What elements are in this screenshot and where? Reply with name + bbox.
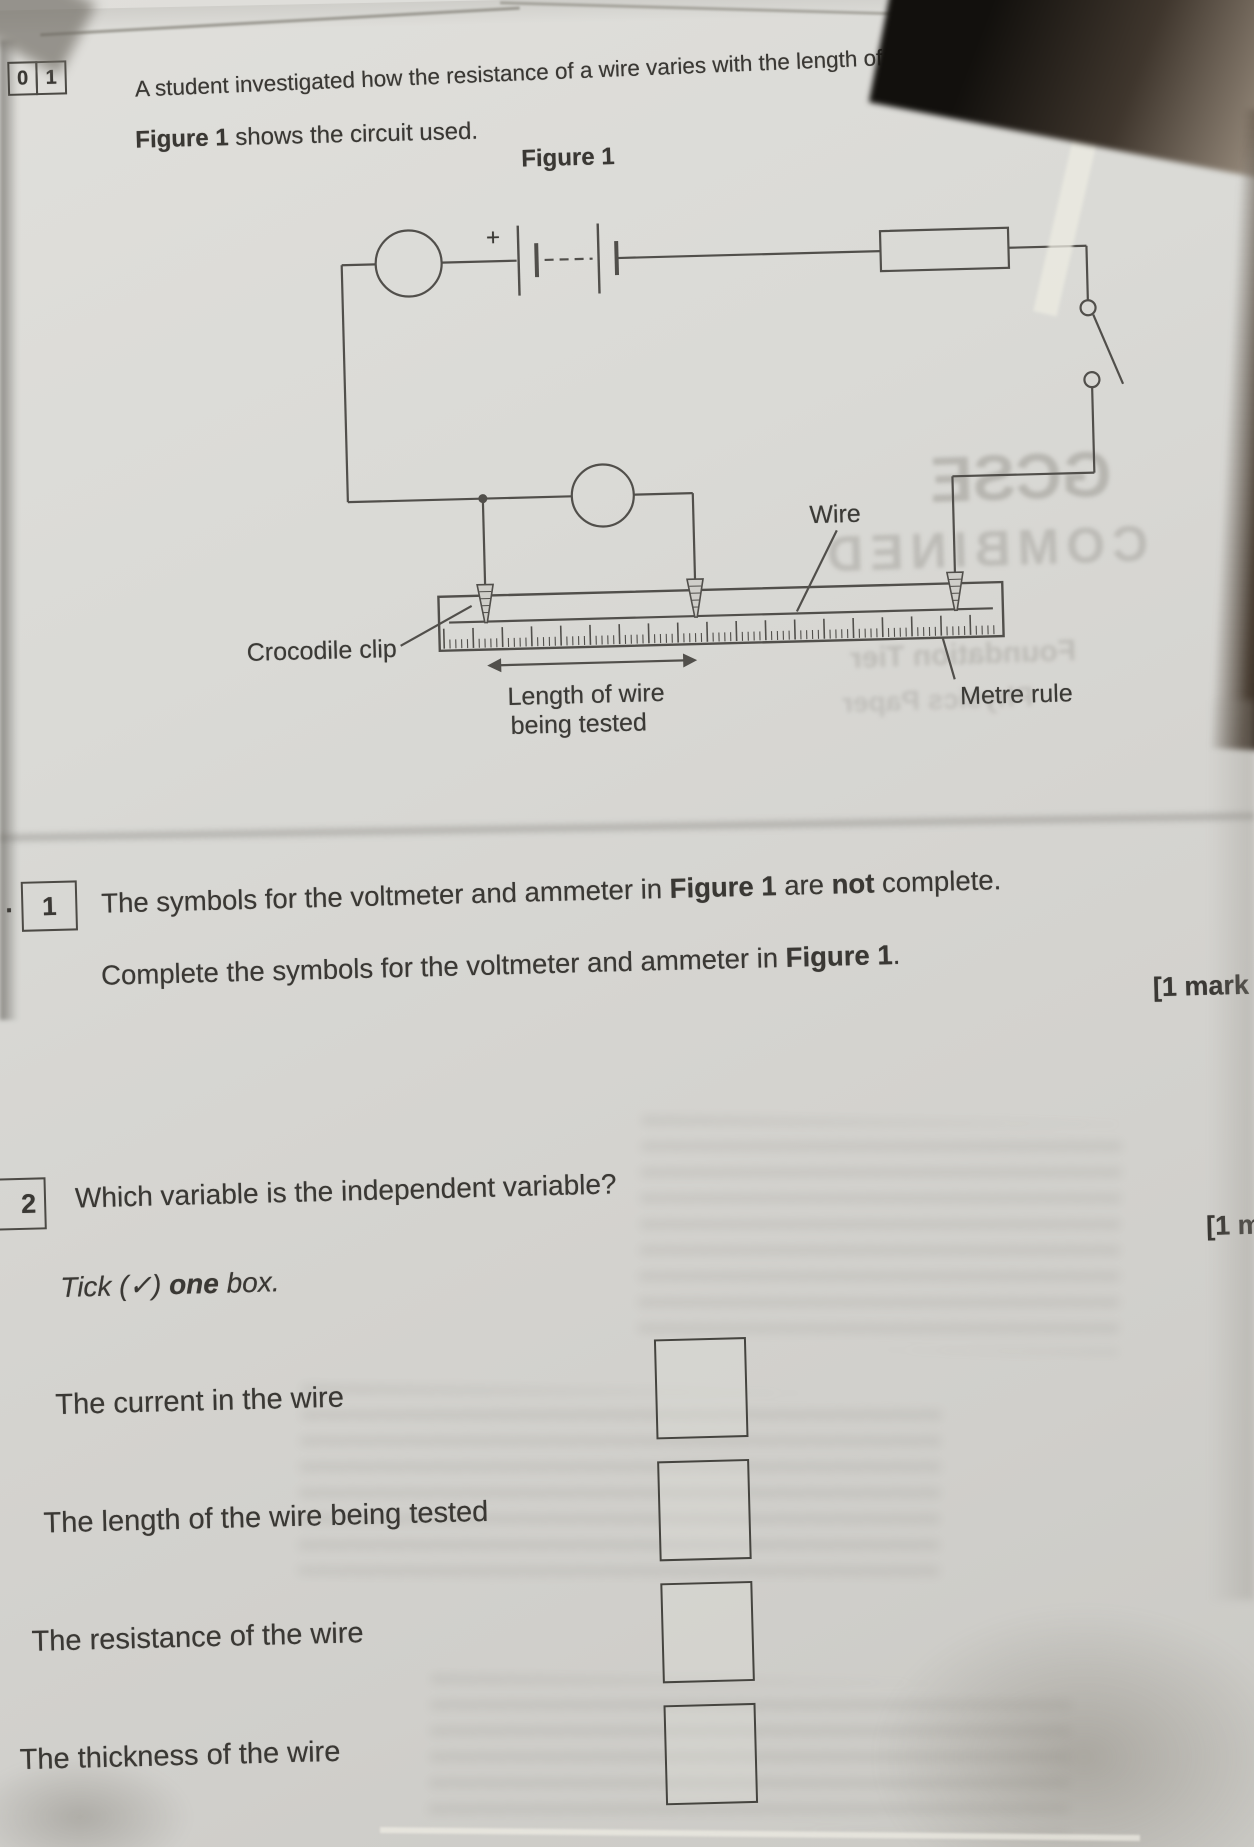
battery-dashed-link [545, 259, 593, 260]
q2-number-box: 2 [0, 1177, 47, 1231]
tick-box-option-3[interactable] [660, 1581, 755, 1683]
q1-instruction-bold: Figure 1 [785, 939, 893, 973]
wire-callout-line [795, 530, 839, 611]
resistor-symbol [880, 228, 1009, 271]
voltmeter-symbol-incomplete[interactable] [571, 464, 635, 528]
battery-cell1-long [518, 226, 520, 296]
q1-marks: [1 mark [1152, 970, 1249, 1004]
exam-page-photo: GCSE COMBINED Foundation Tier Physics Pa… [0, 0, 1254, 1847]
circuit-diagram: + [0, 0, 1254, 1847]
metre-callout-line [943, 637, 955, 679]
tick-box-option-2[interactable] [657, 1459, 752, 1561]
q1-statement-part: are [776, 869, 832, 901]
q1-instruction-part: . [892, 939, 900, 970]
q2-marks: [1 ma [1206, 1209, 1254, 1242]
length-arrow [487, 653, 697, 672]
wire-label: Wire [809, 500, 861, 529]
q1-statement-bold: Figure 1 [669, 870, 777, 904]
tick-instruction-part: Tick ( [60, 1270, 129, 1303]
metre-rule-label: Metre rule [960, 679, 1073, 710]
q2-tick-instruction: Tick (✓) one box. [60, 1265, 280, 1304]
q1-prefix-dot: . [5, 888, 13, 919]
tick-box-option-1[interactable] [654, 1337, 749, 1439]
battery-cell1-short [536, 243, 537, 277]
tick-mark-glyph: ✓ [128, 1270, 152, 1302]
tick-instruction-part: box. [218, 1266, 279, 1299]
ammeter-symbol-incomplete[interactable] [375, 230, 443, 298]
switch-contact-bottom [1084, 372, 1099, 387]
battery-cell2-long [598, 224, 600, 294]
length-label-line1: Length of wire [507, 679, 665, 711]
q1-statement-bold: not [831, 868, 875, 900]
crocodile-clip-label: Crocodile clip [246, 635, 397, 667]
page-content: 0 1 A student investigated how the resis… [0, 0, 1254, 1847]
tick-instruction-bold: one [169, 1268, 220, 1300]
q1-number-box: 1 [21, 880, 78, 931]
switch-contact-top [1080, 300, 1095, 315]
battery-plus-label: + [486, 224, 501, 251]
q1-statement-part: complete. [874, 864, 1002, 898]
length-label-line2: being tested [510, 708, 647, 740]
tick-instruction-part: ) [152, 1269, 170, 1300]
tick-box-option-4[interactable] [663, 1703, 758, 1805]
